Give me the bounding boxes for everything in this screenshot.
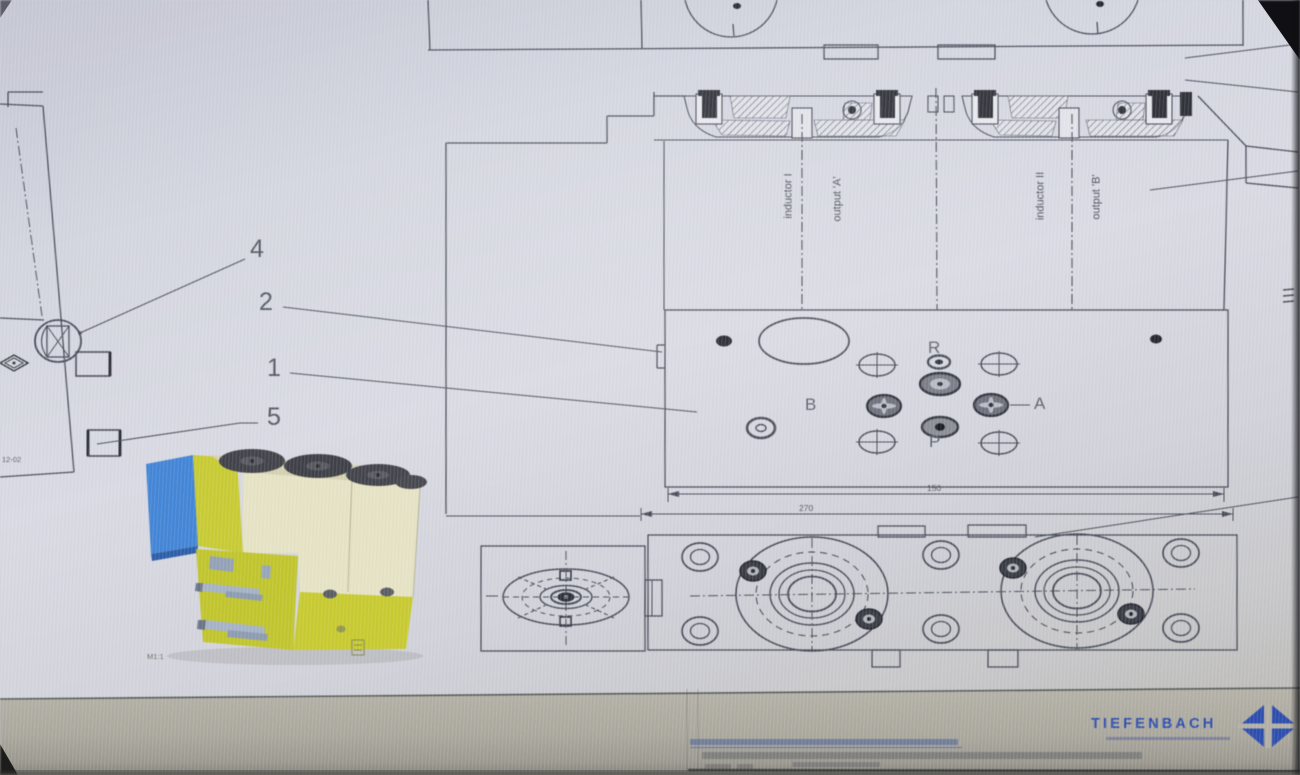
label-inductor-2: inductor II <box>1036 172 1047 220</box>
label-inductor-1: inductor I <box>784 173 795 218</box>
cad-drawing-sheet: 4 2 1 5 R B A P inductor I output 'A' in… <box>0 0 1300 775</box>
port-label-a: A <box>1034 395 1045 412</box>
title-block-text-small-2 <box>737 764 753 769</box>
side-view-code: 12-02 <box>2 456 21 464</box>
callout-4: 4 <box>250 237 264 262</box>
port-label-p: P <box>929 433 940 450</box>
dimension-270: 270 <box>799 504 813 513</box>
title-block-text-small-1 <box>705 764 731 769</box>
callout-2: 2 <box>259 290 273 315</box>
tiefenbach-logo-icon <box>1238 703 1298 749</box>
callout-5: 5 <box>267 405 281 430</box>
brand-wordmark: TIEFENBACH <box>1091 717 1216 732</box>
photographed-screen: 4 2 1 5 R B A P inductor I output 'A' in… <box>0 0 1300 775</box>
title-block-text-row-1 <box>690 739 958 745</box>
dimension-150: 150 <box>927 484 941 493</box>
sheet-background <box>0 0 1300 700</box>
label-output-b: output 'B' <box>1092 174 1103 219</box>
callout-1: 1 <box>267 356 281 381</box>
brand-tagline-bar <box>1106 737 1230 740</box>
label-output-a: output 'A' <box>833 176 844 221</box>
port-label-r: R <box>928 339 940 356</box>
title-block-text-row-2 <box>702 752 1142 759</box>
title-block-text-small-3 <box>792 762 880 767</box>
title-block-underline <box>690 747 962 748</box>
scale-note: M1:1 <box>147 653 164 661</box>
port-label-b: B <box>805 396 816 413</box>
